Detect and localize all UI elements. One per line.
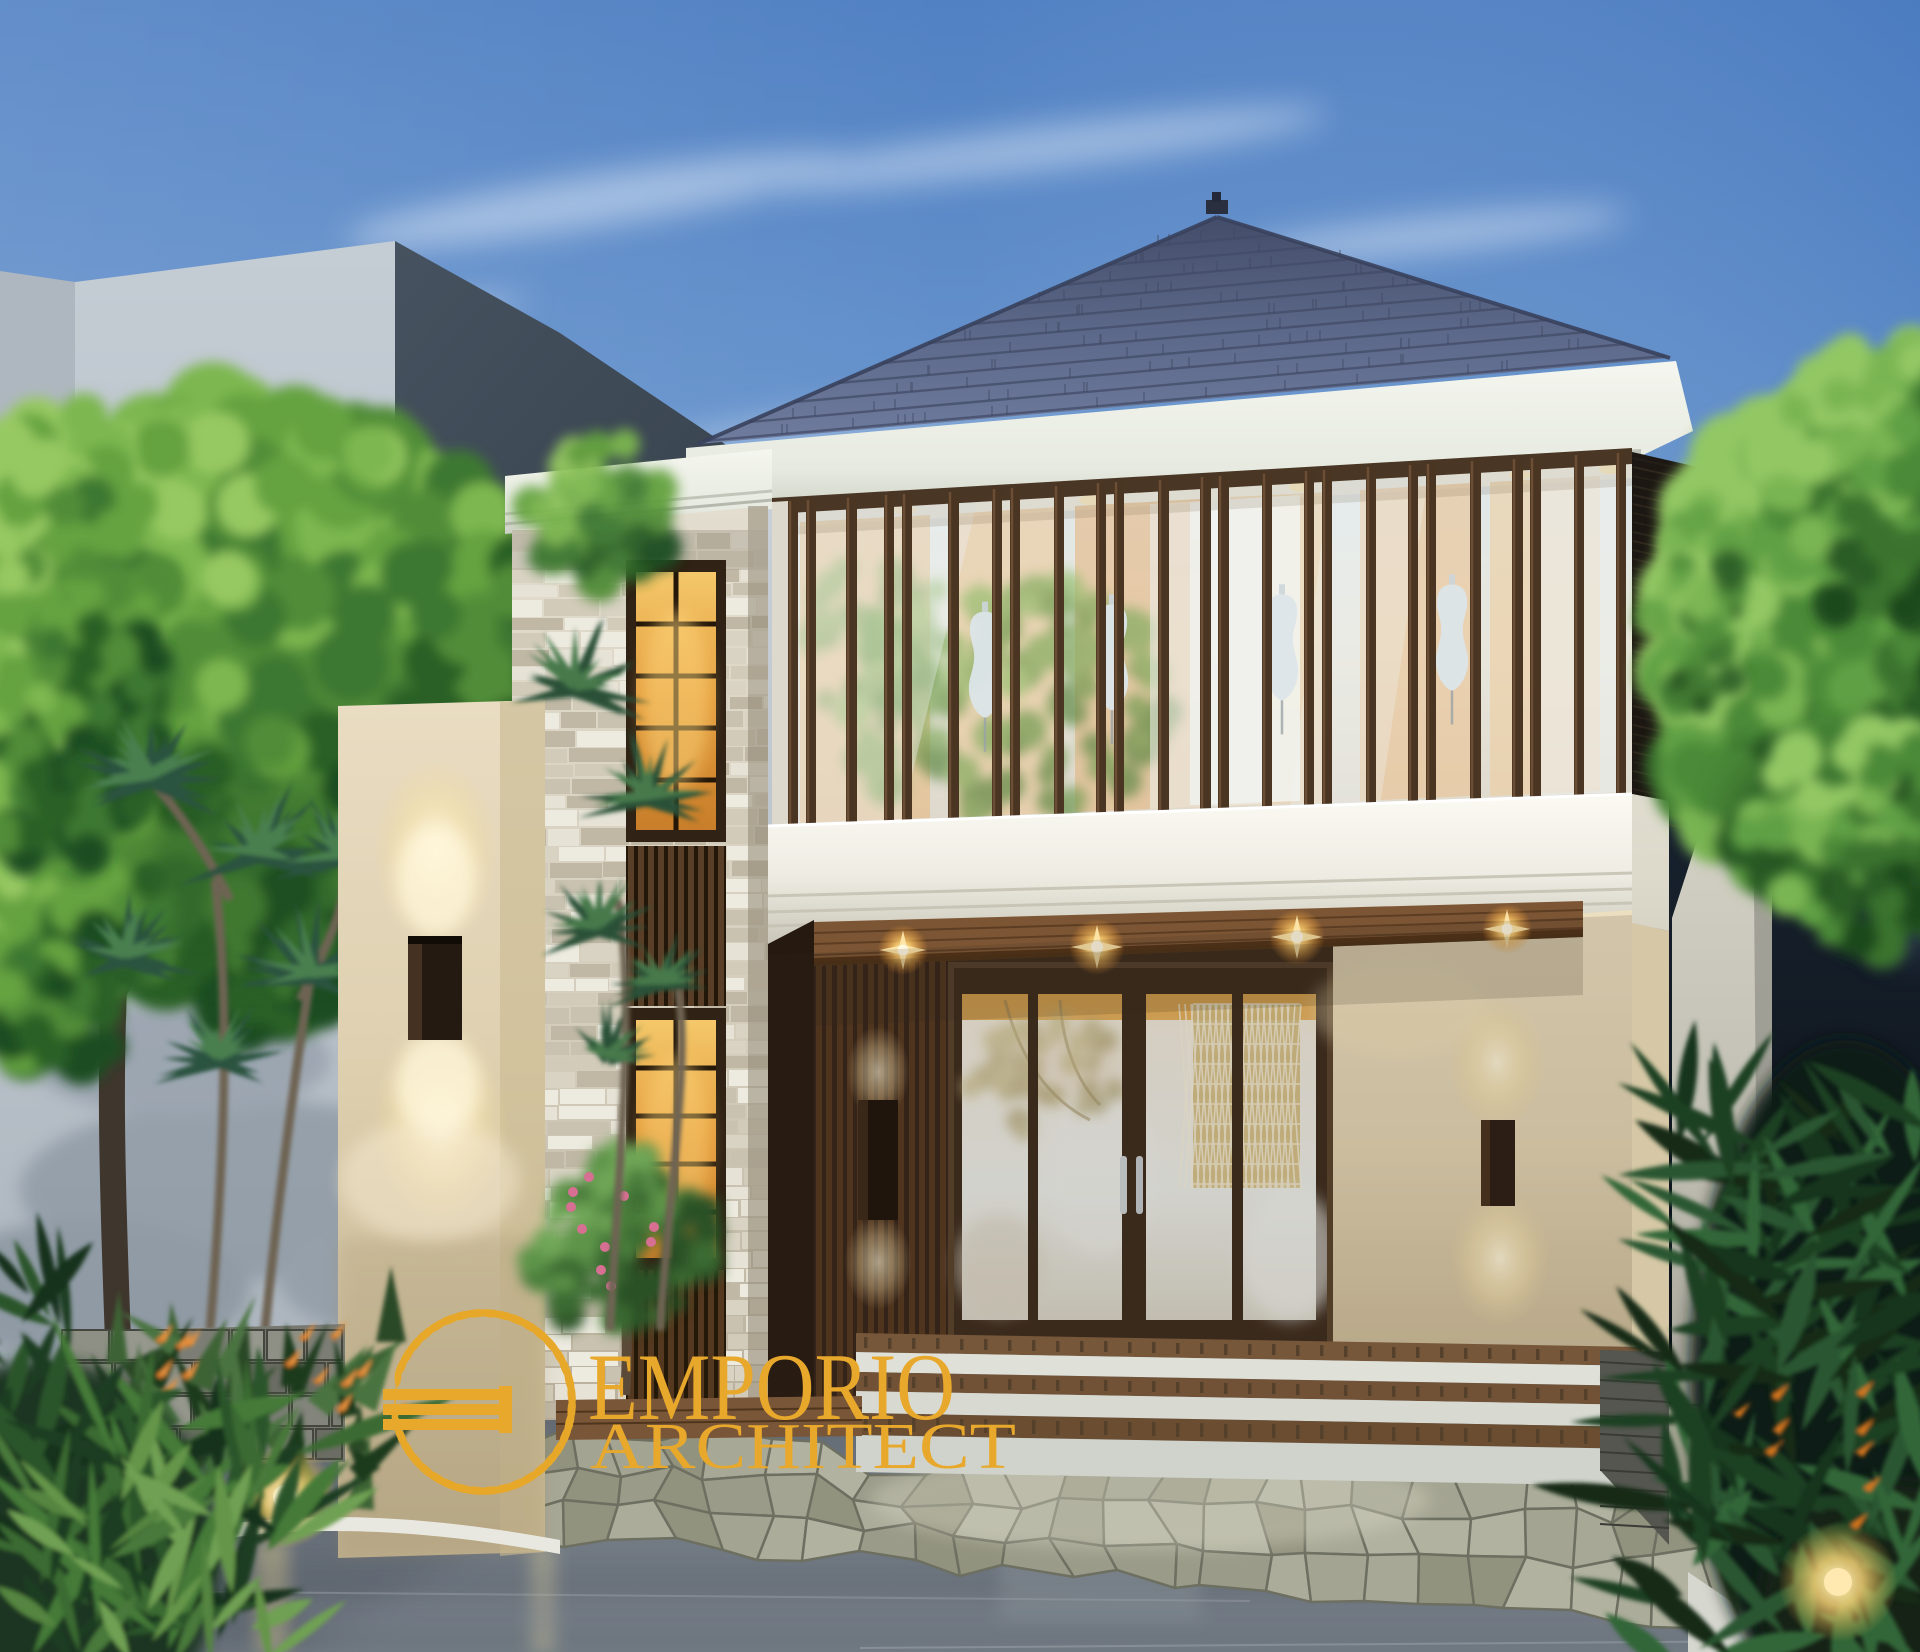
svg-text:ARCHITECT: ARCHITECT (590, 1410, 1016, 1483)
